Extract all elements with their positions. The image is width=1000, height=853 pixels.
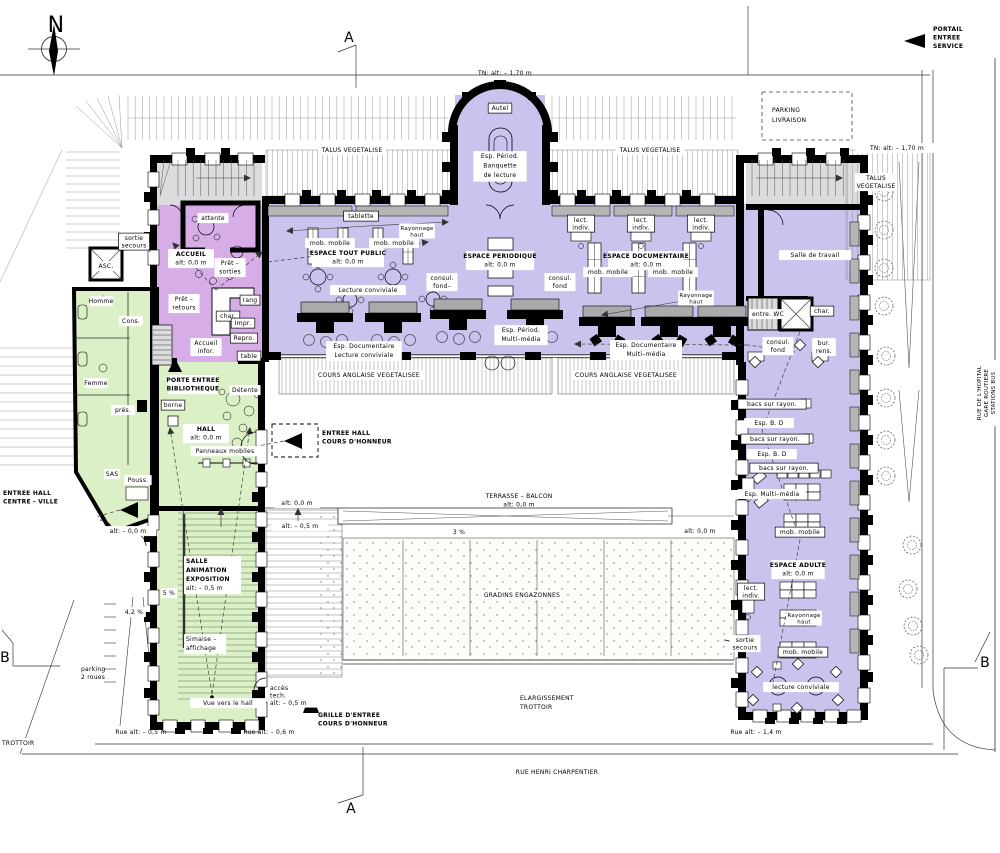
- label-salle-animation-exposition: SALLEANIMATIONEXPOSITIONalt: – 0,5 m: [184, 556, 241, 594]
- label-attente: attente: [197, 213, 228, 223]
- svg-text:Repro.: Repro.: [234, 335, 255, 342]
- label-sortie-secours-nw: sortiesecours: [118, 233, 149, 250]
- svg-text:TERRASSE – BALCONalt: 0,0 m: TERRASSE – BALCONalt: 0,0 m: [484, 493, 552, 509]
- label-lect-indiv-adulte: lect.indiv.: [737, 583, 764, 600]
- svg-text:TN: alt: – 1,70 m: TN: alt: – 1,70 m: [477, 70, 532, 77]
- svg-text:char.: char.: [814, 308, 830, 315]
- label-salle-de-travail: Salle de travail: [779, 250, 851, 260]
- floor-plan-page: NAABBPORTAILENTREESERVICEPARKINGLIVRAISO…: [0, 0, 1000, 853]
- svg-text:entre. WC: entre. WC: [752, 311, 784, 318]
- label-sortie-secours-adulte: sortiesecours: [729, 635, 760, 652]
- svg-text:alt: – 0,0 m: alt: – 0,0 m: [110, 528, 147, 535]
- label-esp-period-multimedia: Esp. Périod.Multi–média: [494, 325, 547, 345]
- svg-text:consul.fond–: consul.fond–: [430, 275, 453, 290]
- svg-text:ENTREE HALLCENTRE - VILLE: ENTREE HALLCENTRE - VILLE: [3, 490, 58, 506]
- svg-text:bacs sur rayon.: bacs sur rayon.: [759, 465, 809, 472]
- label-esp-bd-1: Esp. B. D: [744, 418, 794, 428]
- svg-text:COURS ANGLAISE VEGETALISEE: COURS ANGLAISE VEGETALISEE: [575, 372, 677, 379]
- label-rue-henri-charpentier: RUE HENRI CHARPENTIER: [516, 769, 598, 776]
- svg-text:Homme: Homme: [89, 298, 114, 305]
- label-trottoir: TROTTOIR: [0, 738, 35, 748]
- svg-text:tablette: tablette: [348, 213, 374, 220]
- svg-text:TROTTOIR: TROTTOIR: [1, 740, 34, 747]
- svg-text:Pouss.: Pouss.: [128, 477, 149, 484]
- svg-text:mob. mobile: mob. mobile: [310, 240, 350, 247]
- label-alt-terrasse-right: alt: 0,0 m: [684, 528, 715, 535]
- svg-text:alt: 0,0 m: alt: 0,0 m: [684, 528, 715, 535]
- svg-text:Détente: Détente: [232, 387, 258, 394]
- svg-text:bacs sur rayon.: bacs sur rayon.: [750, 436, 800, 443]
- svg-text:PARKINGLIVRAISON: PARKINGLIVRAISON: [772, 107, 806, 124]
- label-rue-alt-05: Rue alt: – 0,5 m: [115, 729, 166, 736]
- label-porte-entree-bibliotheque: PORTE ENTREEBIBLIOTHEQUE: [166, 375, 219, 394]
- label-acces-tech: accèstech.alt: – 0,5 m: [268, 683, 325, 708]
- label-rang: rang: [240, 295, 260, 305]
- label-mob-mobile-adulte-1: mob. mobile: [775, 527, 825, 537]
- label-mob-mobile-doc-1: mob. mobile: [583, 267, 633, 277]
- svg-text:TALUS VEGETALISE: TALUS VEGETALISE: [321, 147, 383, 154]
- label-espace-adulte: ESPACE ADULTEalt: 0,0 m: [770, 560, 826, 579]
- label-esp-period-banquette: Esp. Périod.Banquettede lecture: [473, 151, 526, 182]
- svg-text:lect.indiv.: lect.indiv.: [742, 585, 759, 600]
- svg-text:mob. mobile: mob. mobile: [374, 240, 414, 247]
- svg-text:A: A: [344, 30, 354, 46]
- label-char-right: char.: [810, 306, 834, 316]
- svg-text:borne: borne: [164, 402, 183, 409]
- label-panneaux-mobiles: Panneaux mobiles: [191, 446, 259, 456]
- svg-text:sortiesecours: sortiesecours: [122, 235, 147, 250]
- label-pret-retours: Prêt –retours: [168, 294, 199, 313]
- label-lecture-conviviale-adulte: lecture conviviale: [763, 682, 839, 692]
- label-portail-entree-service: PORTAILENTREESERVICE: [933, 26, 963, 50]
- svg-text:Prêt –retours: Prêt –retours: [172, 296, 195, 312]
- label-bacs-sur-rayon-3: bacs sur rayon.: [750, 463, 818, 473]
- svg-text:lecture conviviale: lecture conviviale: [772, 684, 830, 691]
- label-rue-de-lhopital: RUE DE L'HOPITALGARE ROUTIERESTATIONS BU…: [975, 360, 998, 426]
- label-borne: borne: [161, 400, 185, 410]
- label-consul-fond-left: consul.fond–: [426, 273, 457, 291]
- label-mob-mobile-tp-2: mob. mobile: [369, 238, 419, 248]
- svg-text:TN: alt: – 1,70 m: TN: alt: – 1,70 m: [869, 145, 924, 152]
- svg-text:Prêt –sorties: Prêt –sorties: [219, 260, 241, 276]
- label-bacs-sur-rayon-1: bacs sur rayon.: [738, 399, 806, 409]
- label-consul-fond-mid: consul.fond: [544, 273, 575, 291]
- svg-text:PORTAILENTREESERVICE: PORTAILENTREESERVICE: [933, 26, 963, 50]
- svg-text:Esp. B. D: Esp. B. D: [757, 451, 786, 458]
- svg-text:4,2 %: 4,2 %: [125, 609, 143, 616]
- floor-plan-drawing: NAABBPORTAILENTREESERVICEPARKINGLIVRAISO…: [0, 0, 1000, 853]
- label-alt-entree-cv: alt: – 0,0 m: [99, 526, 156, 536]
- label-rue-alt-06: Rue alt: – 0,6 m: [243, 729, 294, 736]
- svg-text:A: A: [346, 801, 356, 817]
- svg-text:B: B: [980, 655, 990, 671]
- svg-text:TALUS VEGETALISE: TALUS VEGETALISE: [619, 147, 681, 154]
- label-pente-5: 5 %: [161, 588, 177, 598]
- svg-text:COURS ANGLAISE VEGETALISEE: COURS ANGLAISE VEGETALISEE: [318, 372, 420, 379]
- svg-text:Vue vers le hall: Vue vers le hall: [203, 700, 253, 707]
- label-table: table: [237, 351, 261, 361]
- label-vue-vers-le-hall: Vue vers le hall: [190, 698, 266, 708]
- svg-text:B: B: [0, 650, 10, 666]
- svg-text:Salle de travail: Salle de travail: [791, 252, 840, 259]
- svg-text:lect.indiv.: lect.indiv.: [572, 217, 589, 232]
- svg-text:Femme: Femme: [84, 380, 108, 387]
- label-entre-wc: entre. WC: [749, 309, 787, 319]
- label-bacs-sur-rayon-2: bacs sur rayon.: [741, 434, 809, 444]
- label-cours-anglaise-2: COURS ANGLAISE VEGETALISEE: [571, 370, 680, 380]
- label-bur-rens: bur.rens.: [812, 338, 836, 356]
- svg-text:SAS: SAS: [106, 471, 119, 478]
- svg-text:bur.rens.: bur.rens.: [816, 340, 832, 355]
- label-cons: Cons.: [119, 316, 143, 326]
- svg-text:Esp. Périod.Banquettede lect: Esp. Périod.Banquettede lecture: [481, 153, 519, 179]
- label-rayonnage-haut-tout-public: Rayonnagehaut: [399, 224, 435, 239]
- svg-text:alt: 0,0 m: alt: 0,0 m: [281, 500, 312, 507]
- label-talus-vegetalise-left: TALUS VEGETALISE: [318, 145, 386, 155]
- label-sas: SAS: [104, 469, 120, 479]
- label-elargissement-trottoir: ELARGISSEMENTTROTTOIR: [519, 695, 574, 711]
- label-homme: Homme: [89, 296, 114, 306]
- svg-text:mob. mobile: mob. mobile: [653, 269, 693, 276]
- svg-text:Rue alt: – 0,6 m: Rue alt: – 0,6 m: [243, 729, 294, 736]
- label-talus-vegetalise-east: TALUSVEGETALISE: [855, 173, 897, 191]
- label-femme: Femme: [84, 378, 108, 388]
- svg-text:rang: rang: [243, 297, 258, 304]
- label-lect-indiv-3: lect.indiv.: [687, 215, 714, 232]
- svg-text:Lecture conviviale: Lecture conviviale: [338, 287, 397, 294]
- svg-text:Panneaux mobiles: Panneaux mobiles: [196, 448, 255, 455]
- svg-text:attente: attente: [201, 215, 225, 222]
- label-pente-3: 3 %: [451, 527, 467, 537]
- label-entree-hall-cours-honneur: ENTREE HALLCOURS D'HONNEUR: [320, 428, 392, 447]
- svg-text:GRILLE D'ENTREECOURS D'HONNEUR: GRILLE D'ENTREECOURS D'HONNEUR: [318, 712, 388, 728]
- svg-text:lect.indiv.: lect.indiv.: [632, 217, 649, 232]
- label-rue-alt-14: Rue alt: – 1,4 m: [730, 729, 781, 736]
- label-mob-mobile-adulte-2: mob. mobile: [778, 647, 828, 657]
- label-espace-periodique: ESPACE PERIODIQUEalt: 0,0 m: [463, 251, 536, 270]
- label-section-marker-b-left: B: [0, 650, 10, 666]
- label-compass-label: N: [48, 13, 65, 38]
- label-mob-mobile-doc-2: mob. mobile: [648, 267, 698, 277]
- label-repro: Repro.: [230, 333, 257, 343]
- label-mob-mobile-tp-1: mob. mobile: [305, 238, 355, 248]
- label-pouss: Pouss.: [124, 475, 151, 485]
- svg-text:table: table: [241, 353, 258, 360]
- label-parking-2-roues: parking2 roues: [81, 666, 105, 681]
- svg-text:parking2 roues: parking2 roues: [81, 666, 105, 681]
- svg-text:5 %: 5 %: [163, 590, 175, 597]
- svg-text:RUE HENRI CHARPENTIER: RUE HENRI CHARPENTIER: [516, 769, 598, 776]
- label-lect-indiv-1: lect.indiv.: [567, 215, 594, 232]
- svg-text:Cons.: Cons.: [122, 318, 140, 325]
- label-simaise-affichage: Simaise –affichage: [184, 634, 226, 654]
- svg-text:mob. mobile: mob. mobile: [783, 649, 823, 656]
- svg-text:PORTE ENTREEBIBLIOTHEQUE: PORTE ENTREEBIBLIOTHEQUE: [166, 377, 219, 393]
- label-impr: Impr.: [231, 318, 255, 328]
- label-esp-doc-multimedia: Esp. DocumentaireMulti–média: [610, 340, 682, 360]
- label-grille-entree-cours-honneur: GRILLE D'ENTREECOURS D'HONNEUR: [318, 712, 388, 728]
- svg-text:sortiesecours: sortiesecours: [733, 637, 758, 652]
- label-hall: HALLalt: 0,0 m: [183, 424, 229, 443]
- svg-text:RUE DE L'HOPITALGARE ROUTIE: RUE DE L'HOPITALGARE ROUTIERESTATIONS BU…: [977, 365, 997, 420]
- svg-text:ASC.: ASC.: [98, 263, 113, 270]
- label-pente-4-2: 4,2 %: [122, 607, 146, 617]
- svg-text:Rue alt: – 0,5 m: Rue alt: – 0,5 m: [115, 729, 166, 736]
- label-section-marker-a-bottom: A: [346, 801, 356, 817]
- svg-text:Impr.: Impr.: [235, 320, 252, 327]
- label-pret-sorties: Prêt –sorties: [214, 258, 245, 277]
- label-tn-alt-top-right: TN: alt: – 1,70 m: [855, 143, 938, 153]
- label-espace-tout-public: ESPACE TOUT PUBLICalt: 0,0 m: [310, 248, 387, 267]
- svg-text:bacs sur rayon.: bacs sur rayon.: [747, 401, 797, 408]
- svg-text:ENTREE HALLCOURS D'HONNEUR: ENTREE HALLCOURS D'HONNEUR: [322, 430, 392, 446]
- label-section-marker-a-top: A: [344, 30, 354, 46]
- label-cours-anglaise-1: COURS ANGLAISE VEGETALISEE: [314, 370, 423, 380]
- label-talus-vegetalise-right: TALUS VEGETALISE: [616, 145, 684, 155]
- svg-text:Accueilinfor.: Accueilinfor.: [194, 340, 217, 355]
- svg-text:mob. mobile: mob. mobile: [588, 269, 628, 276]
- svg-text:ELARGISSEMENTTROTTOIR: ELARGISSEMENTTROTTOIR: [519, 695, 574, 711]
- label-lect-indiv-2: lect.indiv.: [627, 215, 654, 232]
- svg-text:lect.indiv.: lect.indiv.: [692, 217, 709, 232]
- label-tn-alt-top-center: TN: alt: – 1,70 m: [477, 70, 532, 77]
- label-accueil: ACCUEILalt: 0,0 m: [168, 249, 214, 268]
- label-pres: prés.: [111, 405, 135, 415]
- label-consul-fond-right: consul.fond: [762, 337, 793, 355]
- svg-text:N: N: [48, 13, 65, 38]
- svg-text:alt: – 0,5 m: alt: – 0,5 m: [282, 523, 319, 530]
- label-alt-ramp-05: alt: – 0,5 m: [271, 521, 328, 531]
- svg-text:Rue alt: – 1,4 m: Rue alt: – 1,4 m: [730, 729, 781, 736]
- svg-text:3 %: 3 %: [453, 529, 465, 536]
- label-autel: Autel: [488, 103, 512, 113]
- label-esp-doc-lecture-conviviale: Esp. DocumentaireLecture conviviale: [326, 341, 402, 361]
- label-esp-bd-2: Esp. B. D: [747, 449, 797, 459]
- label-section-marker-b-right: B: [980, 655, 990, 671]
- label-accueil-infor: Accueilinfor.: [190, 338, 221, 356]
- svg-text:Autel: Autel: [492, 105, 509, 112]
- label-terrasse-balcon: TERRASSE – BALCONalt: 0,0 m: [484, 493, 552, 509]
- svg-text:Esp. B. D: Esp. B. D: [754, 420, 783, 427]
- svg-text:GRADINS ENGAZONNES: GRADINS ENGAZONNES: [484, 592, 560, 599]
- label-gradins-engazonnes: GRADINS ENGAZONNES: [484, 590, 560, 600]
- label-alt-ramp-0: alt: 0,0 m: [274, 498, 320, 508]
- svg-text:ACCUEILalt: 0,0 m: ACCUEILalt: 0,0 m: [175, 251, 206, 267]
- svg-text:prés.: prés.: [115, 407, 131, 414]
- label-tablette: tablette: [344, 211, 379, 221]
- svg-text:Esp. Multi–média: Esp. Multi–média: [745, 491, 800, 498]
- label-lecture-conviviale-tp: Lecture conviviale: [330, 285, 406, 295]
- label-parking-livraison: PARKINGLIVRAISON: [772, 107, 806, 124]
- label-rayonnage-haut-adulte: Rayonnagehaut: [786, 611, 822, 626]
- svg-text:mob. mobile: mob. mobile: [780, 529, 820, 536]
- label-rayonnage-haut-doc: Rayonnagehaut: [678, 291, 714, 306]
- label-asc: ASC.: [96, 261, 116, 271]
- label-esp-multimedia-right: Esp. Multi–média: [738, 489, 806, 499]
- label-entree-hall-centre-ville: ENTREE HALLCENTRE - VILLE: [1, 488, 58, 507]
- label-detente: Détente: [229, 385, 260, 395]
